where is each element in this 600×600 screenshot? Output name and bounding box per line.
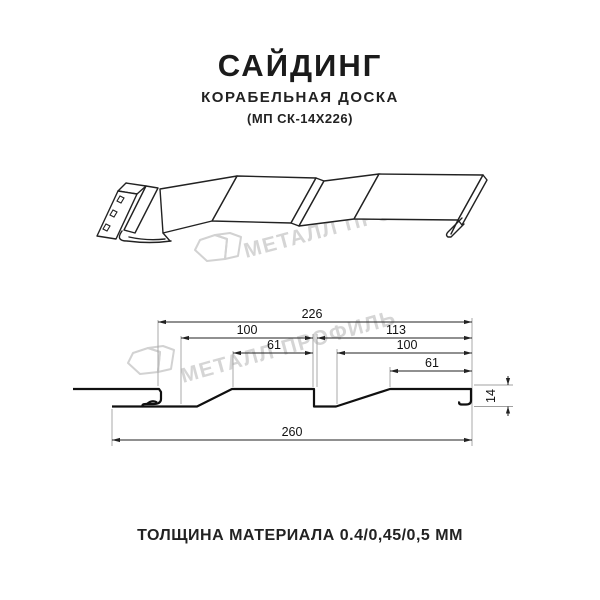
watermark-bottom: МЕТАЛЛ ПРОФИЛЬ [128,306,399,388]
dim-right-panel: 113 [386,323,406,337]
dim-total-width: 260 [282,425,303,439]
metall-profil-logo-icon [195,233,241,261]
profile-outline [112,389,471,407]
adjacent-panel-edge [73,389,161,399]
material-thickness-note: ТОЛЩИНА МАТЕРИАЛА 0.4/0,45/0,5 ММ [0,527,600,545]
watermark-brand-text: МЕТАЛЛ ПРОФИЛЬ [178,306,399,388]
dim-left-panel: 100 [237,323,258,337]
lock-bottom-curl-inner [129,237,165,240]
metall-profil-logo-icon [128,346,174,374]
dimensions: 226 100 113 61 100 61 260 [112,307,510,442]
dim-height: 14 [484,389,498,403]
dim-right-flat: 61 [425,356,439,370]
dim-overall-width: 226 [302,307,323,321]
dim-left-flat: 61 [267,338,281,352]
cross-section-drawing [73,389,471,407]
drawing-canvas: МЕТАЛЛ ПРОФИЛЬ МЕТАЛЛ ПРОФИЛЬ [0,0,600,600]
dim-right-inner: 100 [397,338,418,352]
catalog-product-image: САЙДИНГ КОРАБЕЛЬНАЯ ДОСКА (МП СК-14Х226)… [0,0,600,600]
